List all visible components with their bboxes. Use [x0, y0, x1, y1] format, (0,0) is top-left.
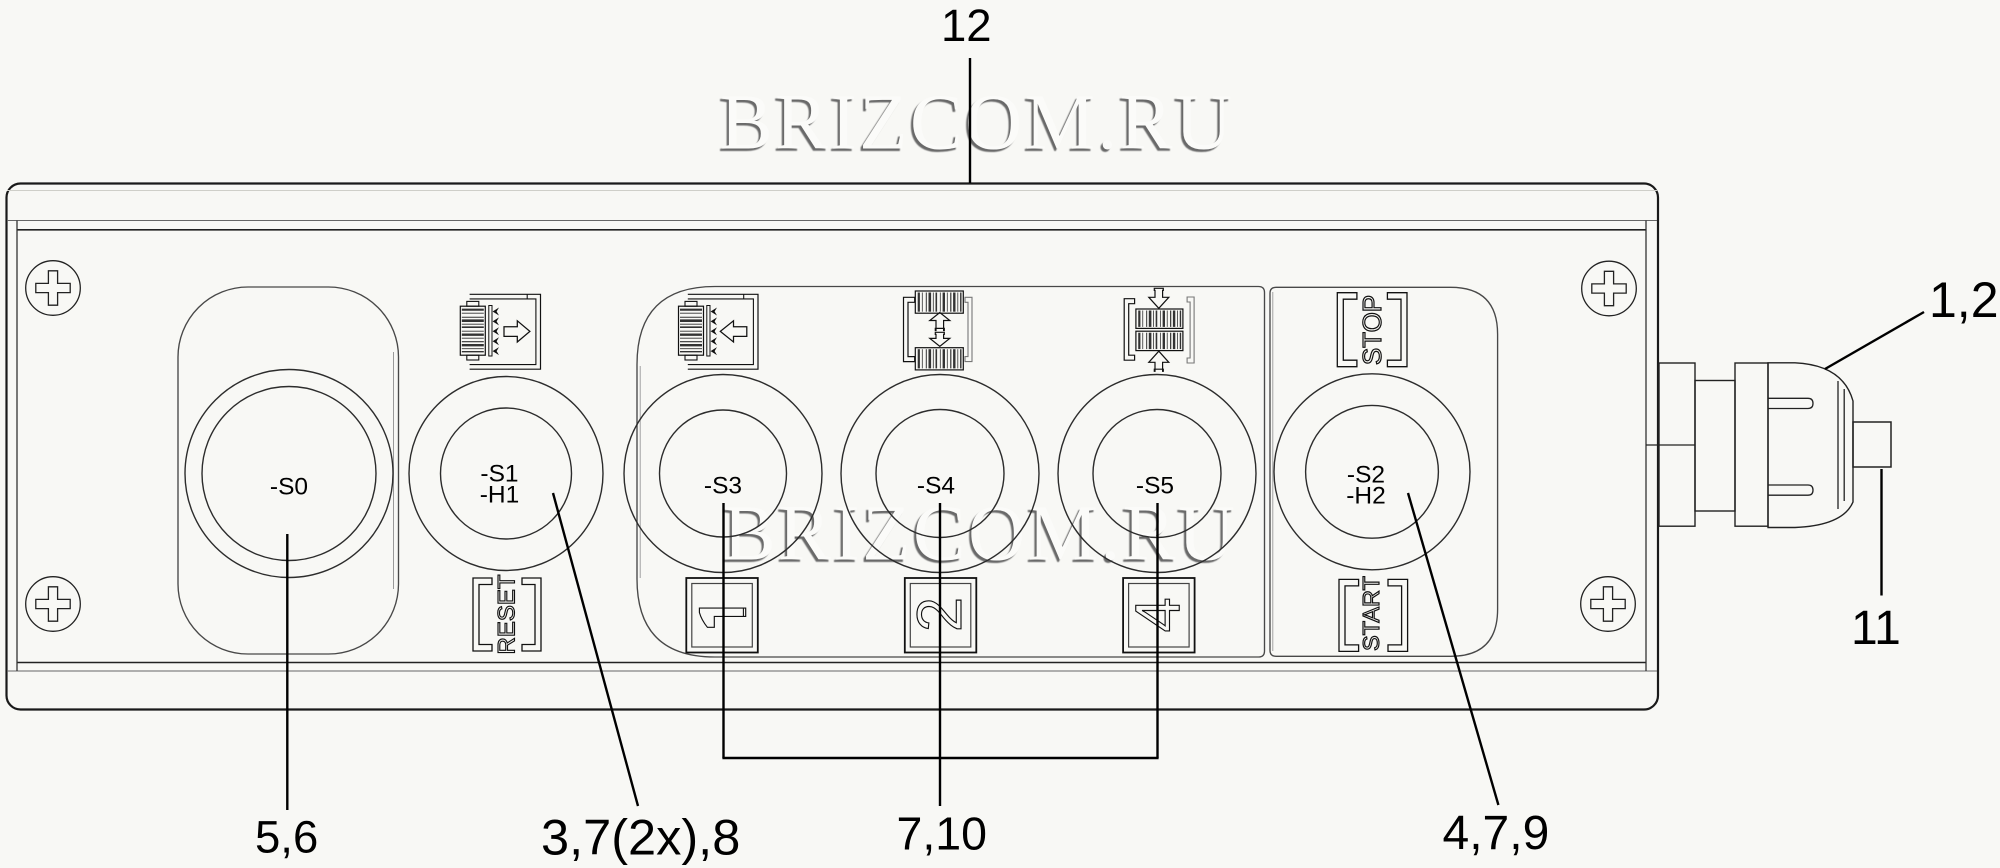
- svg-text:RESET: RESET: [494, 574, 521, 654]
- svg-text:5,6: 5,6: [255, 812, 318, 863]
- svg-text:-S0: -S0: [270, 474, 308, 501]
- svg-text:12: 12: [941, 0, 992, 51]
- svg-text:BRIZCOM.RU: BRIZCOM.RU: [720, 80, 1232, 167]
- svg-text:-S5: -S5: [1136, 473, 1174, 500]
- svg-text:-S3: -S3: [704, 473, 742, 500]
- svg-text:11: 11: [1851, 602, 1901, 655]
- svg-text:-H2: -H2: [1346, 483, 1385, 510]
- svg-text:3,7(2x),8: 3,7(2x),8: [541, 809, 740, 866]
- svg-text:START: START: [1358, 576, 1384, 651]
- svg-text:4,7,9: 4,7,9: [1443, 807, 1550, 860]
- svg-text:-S4: -S4: [917, 473, 955, 500]
- svg-text:7,10: 7,10: [897, 808, 988, 860]
- svg-text:STOP: STOP: [1357, 295, 1387, 365]
- svg-text:1,2: 1,2: [1929, 272, 1999, 328]
- svg-text:-H1: -H1: [480, 482, 519, 509]
